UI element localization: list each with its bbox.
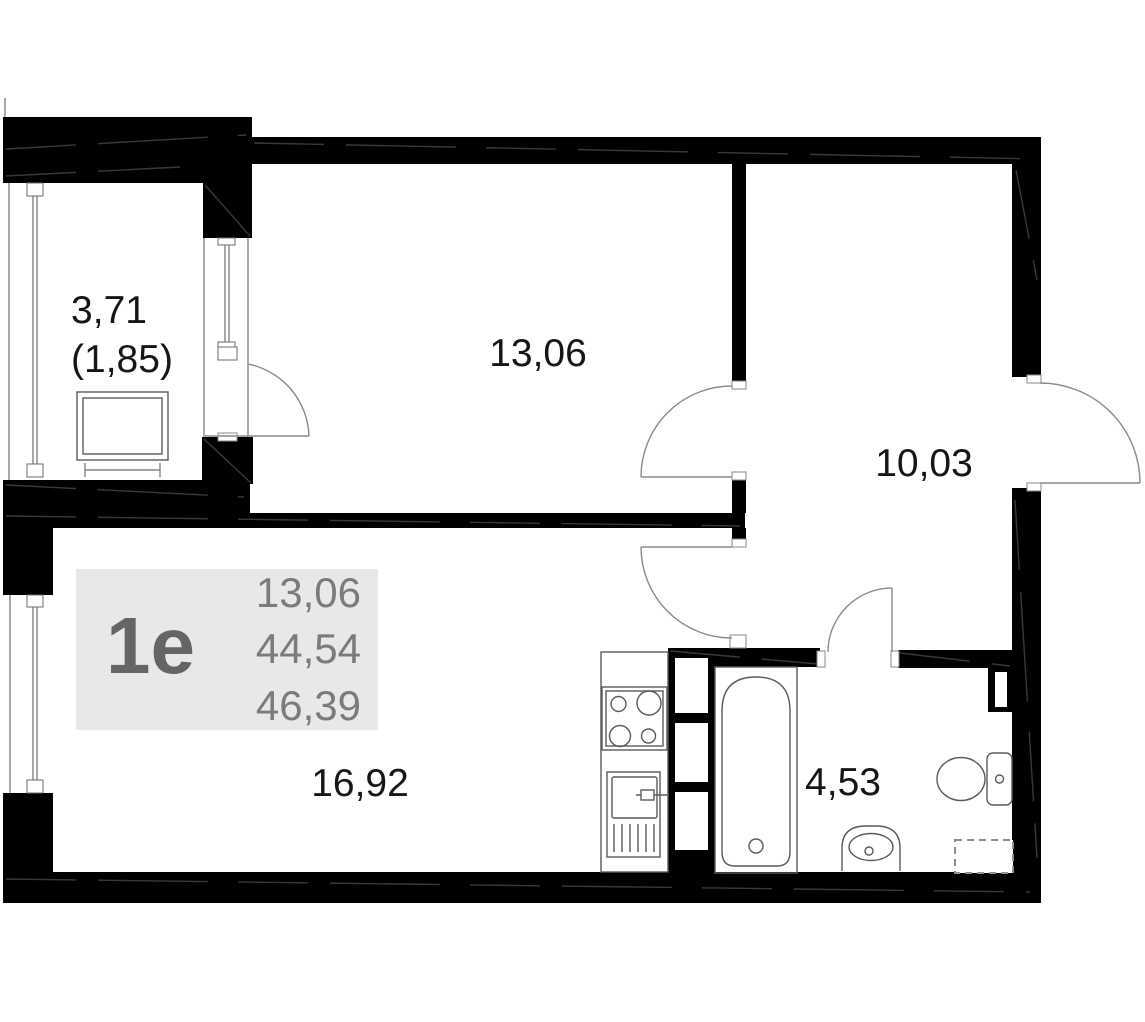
loggia-sill-cabinet xyxy=(77,392,168,460)
wall-central-block-a xyxy=(732,480,746,513)
loggia-partition-window xyxy=(204,238,248,437)
shaft-opening-1 xyxy=(675,658,708,713)
info-box: 1е 13,06 44,54 46,39 xyxy=(76,569,378,730)
room-area-label: 13,06 xyxy=(489,332,587,375)
wall-central xyxy=(732,164,746,381)
kitchen-counter xyxy=(601,652,668,872)
dimension-line xyxy=(85,463,160,477)
shaft-opening-4 xyxy=(995,672,1007,707)
stove xyxy=(602,687,667,750)
bathroom-sink xyxy=(842,826,900,871)
living-room-area-label: 16,92 xyxy=(311,762,409,805)
room-door xyxy=(641,386,732,477)
floor-plan: 1е 13,06 44,54 46,39 3,71 (1,85) 13,06 1… xyxy=(0,0,1145,1022)
loggia-area-label: 3,71 xyxy=(71,289,147,332)
wall-central-block-b xyxy=(732,528,746,540)
wall-left-mid xyxy=(3,518,53,595)
entrance-door xyxy=(1040,383,1140,483)
info-value-room-area: 13,06 xyxy=(256,569,361,616)
unit-type-label: 1е xyxy=(106,601,195,690)
wall-bottom xyxy=(3,872,1041,903)
hallway-area-label: 10,03 xyxy=(875,442,973,485)
kitchen-sink xyxy=(607,772,669,857)
shaft-opening-2 xyxy=(675,723,708,782)
bathtub xyxy=(715,667,797,873)
toilet xyxy=(937,753,1012,805)
wall-top-left-block xyxy=(3,117,252,183)
wall-loggia-bottom xyxy=(3,480,250,515)
shaft-opening-3 xyxy=(675,792,708,850)
info-value-living-area: 44,54 xyxy=(256,625,361,672)
bathroom-area-label: 4,53 xyxy=(805,761,881,804)
washing-machine xyxy=(955,840,1013,873)
info-value-total-area: 46,39 xyxy=(256,682,361,729)
living-room-window xyxy=(10,595,43,793)
loggia-window-left xyxy=(9,183,43,480)
wall-left-lower xyxy=(3,793,53,872)
living-room-door xyxy=(641,547,732,638)
walls xyxy=(3,117,1041,903)
loggia-door xyxy=(205,364,309,436)
bathroom-door xyxy=(828,588,892,652)
loggia-reduced-area-label: (1,85) xyxy=(71,338,173,381)
